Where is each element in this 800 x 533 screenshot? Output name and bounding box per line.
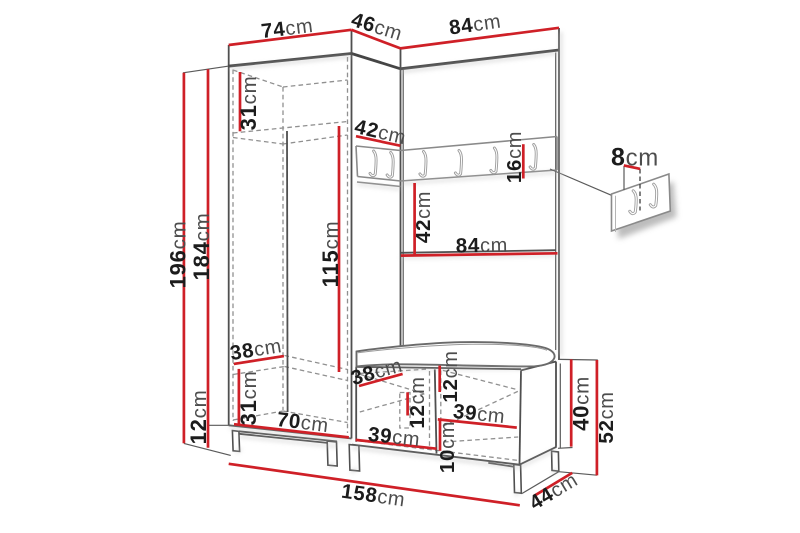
- svg-text:196cm: 196cm: [166, 221, 191, 289]
- svg-text:12cm: 12cm: [439, 350, 462, 402]
- svg-text:31cm: 31cm: [236, 371, 261, 426]
- svg-text:10cm: 10cm: [436, 421, 459, 473]
- svg-text:8cm: 8cm: [611, 144, 659, 172]
- svg-text:40cm: 40cm: [569, 376, 594, 431]
- svg-text:42cm: 42cm: [412, 191, 435, 243]
- svg-text:184cm: 184cm: [189, 213, 214, 281]
- svg-text:31cm: 31cm: [236, 76, 261, 131]
- svg-text:16cm: 16cm: [503, 131, 526, 183]
- svg-text:12cm: 12cm: [186, 390, 211, 445]
- svg-text:84cm: 84cm: [456, 234, 509, 258]
- svg-text:12cm: 12cm: [406, 376, 429, 428]
- svg-text:52cm: 52cm: [595, 391, 618, 443]
- svg-text:115cm: 115cm: [318, 221, 343, 288]
